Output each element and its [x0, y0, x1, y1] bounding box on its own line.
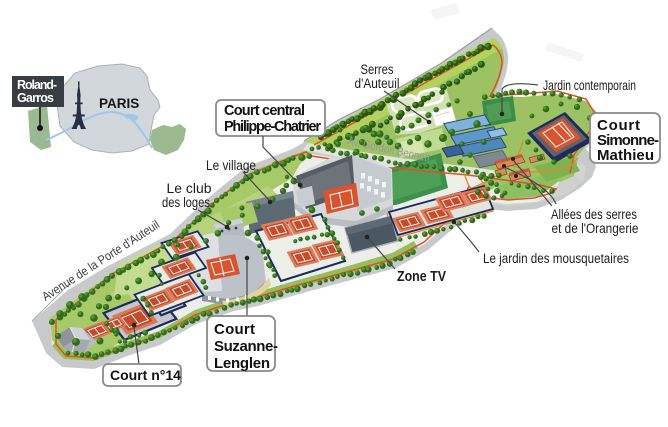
svg-text:Zone TV: Zone TV	[397, 269, 446, 285]
svg-text:d'Auteuil: d'Auteuil	[355, 76, 400, 91]
svg-text:PARIS: PARIS	[99, 96, 139, 111]
svg-text:Roland-: Roland-	[17, 78, 57, 92]
svg-text:Court central: Court central	[224, 103, 305, 119]
svg-text:Jardin contemporain: Jardin contemporain	[543, 77, 636, 93]
svg-text:et de l'Orangerie: et de l'Orangerie	[552, 220, 639, 236]
svg-text:Le village: Le village	[206, 157, 256, 173]
svg-text:Suzanne-: Suzanne-	[214, 338, 278, 355]
svg-text:des loges: des loges	[162, 194, 210, 210]
svg-text:Serres: Serres	[361, 62, 394, 77]
svg-text:Le jardin des mousquetaires: Le jardin des mousquetaires	[483, 251, 629, 266]
svg-text:Philippe-Chatrier: Philippe-Chatrier	[224, 119, 321, 135]
svg-text:Garros: Garros	[17, 91, 54, 105]
svg-text:Court n°14: Court n°14	[110, 367, 181, 383]
svg-text:Court: Court	[214, 321, 255, 338]
svg-text:Lenglen: Lenglen	[214, 355, 270, 372]
svg-text:Mathieu: Mathieu	[597, 147, 654, 164]
